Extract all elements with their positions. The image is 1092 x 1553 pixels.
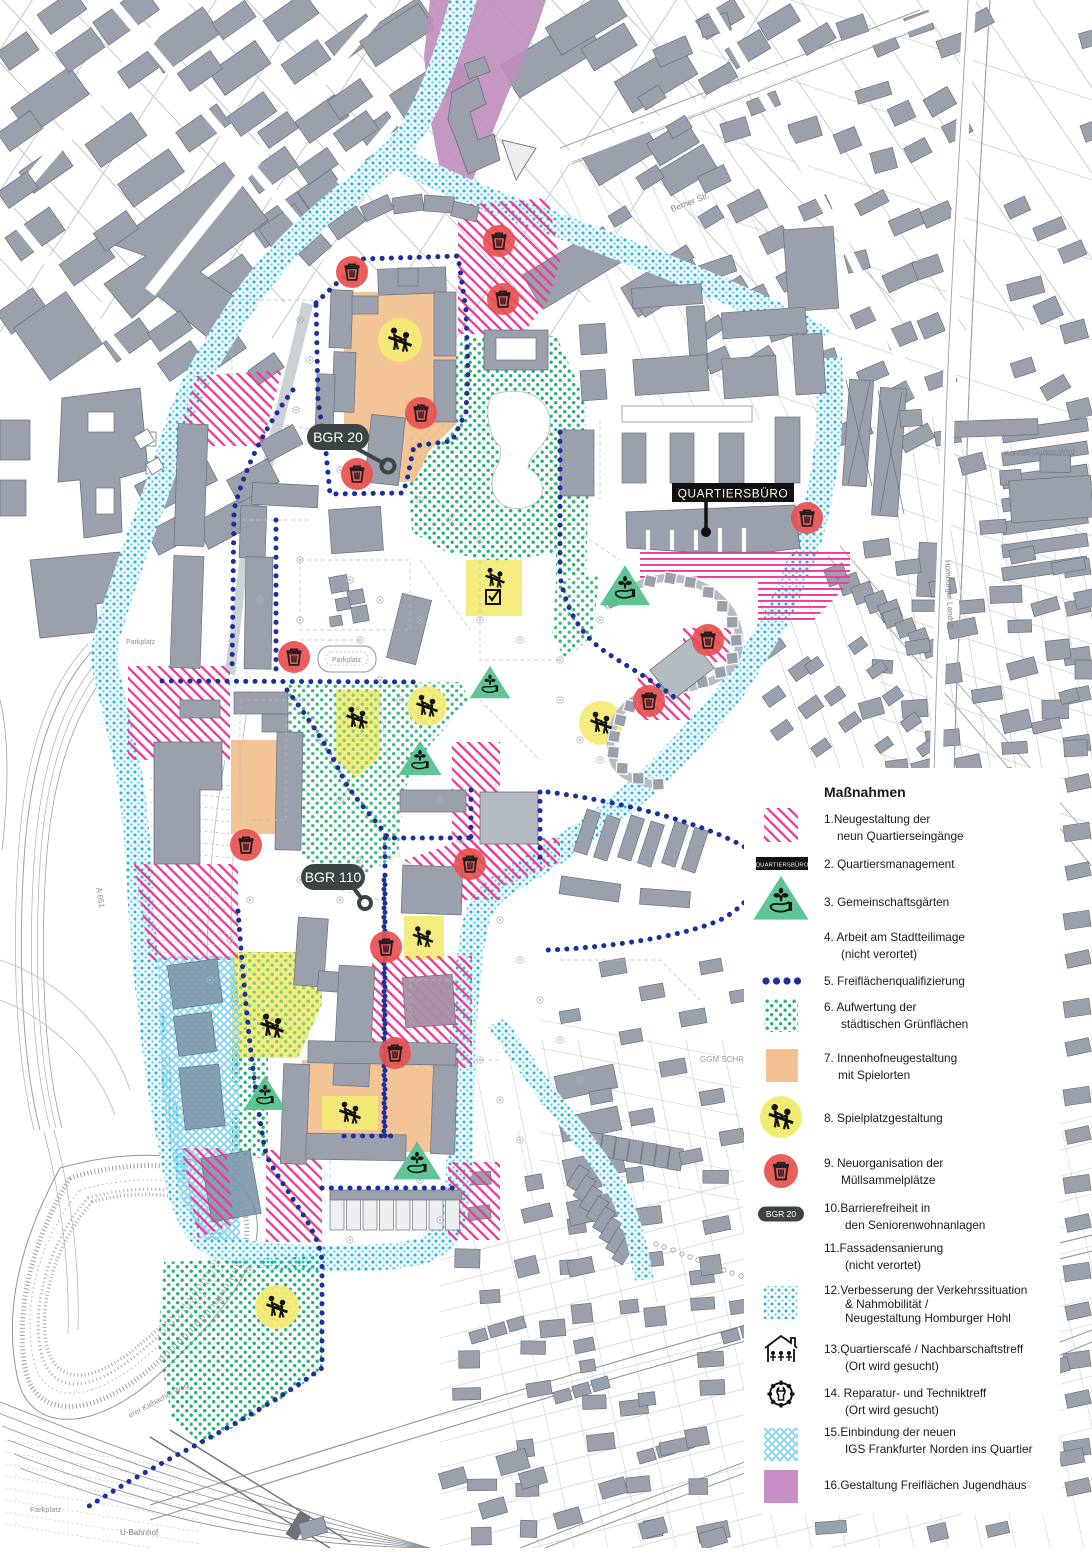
svg-text:10.Barrierefreiheit in: 10.Barrierefreiheit in bbox=[824, 1201, 930, 1215]
svg-text:QUARTIERSBÜRO: QUARTIERSBÜRO bbox=[678, 487, 789, 501]
svg-text:(nicht verortet): (nicht verortet) bbox=[845, 1258, 921, 1272]
svg-text:9. Neuorganisation der: 9. Neuorganisation der bbox=[824, 1156, 943, 1170]
svg-text:(Ort wird gesucht): (Ort wird gesucht) bbox=[845, 1403, 939, 1417]
svg-text:3. Gemeinschaftsgärten: 3. Gemeinschaftsgärten bbox=[824, 895, 949, 909]
svg-text:neun Quartierseingänge: neun Quartierseingänge bbox=[837, 829, 964, 843]
svg-text:Parkplatz: Parkplatz bbox=[332, 657, 362, 664]
svg-text:Maßnahmen: Maßnahmen bbox=[824, 784, 906, 800]
svg-text:IGS Frankfurter Norden ins Qua: IGS Frankfurter Norden ins Quartier bbox=[845, 1442, 1033, 1456]
svg-text:2. Quartiersmanagement: 2. Quartiersmanagement bbox=[824, 857, 955, 871]
svg-text:4. Arbeit am Stadtteilimage: 4. Arbeit am Stadtteilimage bbox=[824, 930, 965, 944]
svg-text:BGR 110: BGR 110 bbox=[305, 869, 362, 885]
svg-text:8. Spielplatzgestaltung: 8. Spielplatzgestaltung bbox=[824, 1111, 943, 1125]
svg-text:1.Neugestaltung der: 1.Neugestaltung der bbox=[824, 812, 930, 826]
svg-text:14. Reparatur- und Techniktref: 14. Reparatur- und Techniktreff bbox=[824, 1386, 987, 1400]
svg-text:Neugestaltung Homburger Hohl: Neugestaltung Homburger Hohl bbox=[845, 1311, 1011, 1325]
svg-text:7. Innenhofneugestaltung: 7. Innenhofneugestaltung bbox=[824, 1051, 957, 1065]
svg-text:13.Quartierscafé / Nachbarscha: 13.Quartierscafé / Nachbarschaftstreff bbox=[824, 1342, 1024, 1356]
svg-text:6. Aufwertung der: 6. Aufwertung der bbox=[824, 1000, 917, 1014]
svg-text:U-Bahnhof: U-Bahnhof bbox=[120, 1528, 159, 1537]
svg-text:(Ort wird gesucht): (Ort wird gesucht) bbox=[845, 1359, 939, 1373]
svg-text:& Nahmobilität /: & Nahmobilität / bbox=[845, 1297, 929, 1311]
svg-text:15.Einbindung der neuen: 15.Einbindung der neuen bbox=[824, 1425, 956, 1439]
svg-text:Parkplatz: Parkplatz bbox=[30, 1505, 62, 1514]
svg-text:QUARTIERSBÜRO: QUARTIERSBÜRO bbox=[755, 862, 808, 869]
svg-text:Parkplatz: Parkplatz bbox=[126, 639, 156, 646]
svg-text:16.Gestaltung Freiflächen Juge: 16.Gestaltung Freiflächen Jugendhaus bbox=[824, 1478, 1027, 1492]
svg-text:11.Fassadensanierung: 11.Fassadensanierung bbox=[824, 1241, 943, 1255]
svg-text:5. Freiflächenqualifizierung: 5. Freiflächenqualifizierung bbox=[824, 974, 965, 988]
svg-text:BGR 20: BGR 20 bbox=[766, 1209, 797, 1219]
svg-text:Müllsammelplätze: Müllsammelplätze bbox=[841, 1173, 936, 1187]
svg-text:BGR 20: BGR 20 bbox=[313, 429, 363, 445]
svg-text:(nicht verortet): (nicht verortet) bbox=[841, 947, 917, 961]
svg-text:städtischen Grünflächen: städtischen Grünflächen bbox=[841, 1017, 968, 1031]
svg-text:den Seniorenwohnanlagen: den Seniorenwohnanlagen bbox=[845, 1218, 985, 1232]
svg-text:12.Verbesserung der Verkehrssi: 12.Verbesserung der Verkehrssituation bbox=[824, 1283, 1027, 1297]
svg-text:mit Spielorten: mit Spielorten bbox=[838, 1068, 910, 1082]
